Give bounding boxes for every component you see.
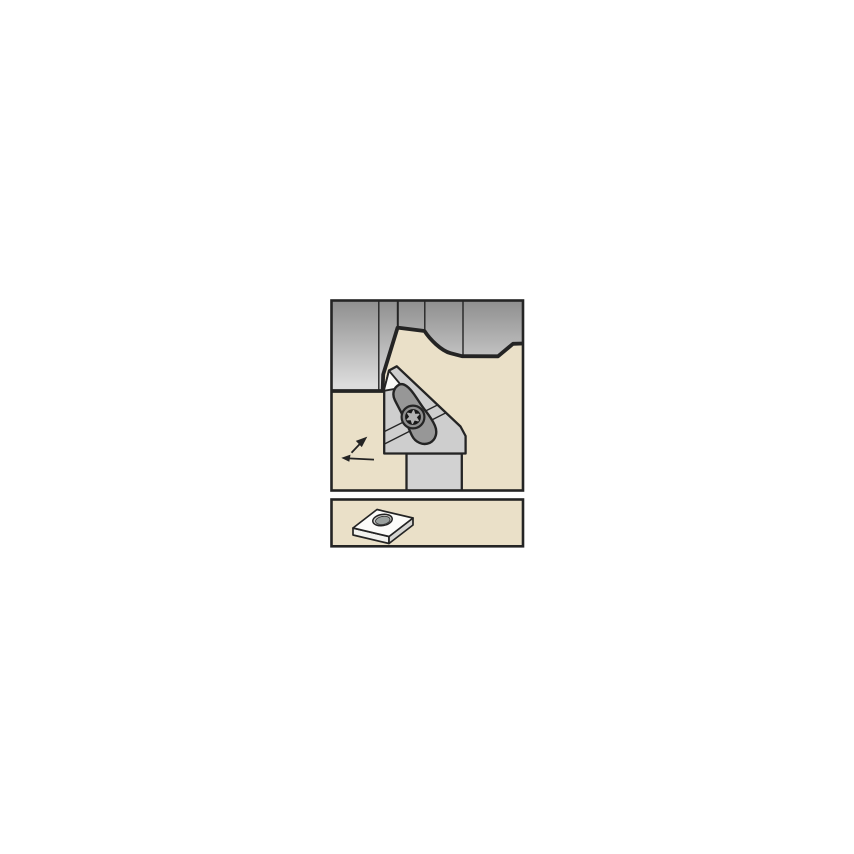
main-panel <box>331 301 524 492</box>
torx-screw-icon <box>402 406 425 429</box>
insert-panel <box>332 500 524 547</box>
catalog-figure <box>0 0 854 854</box>
holder-shank <box>407 454 462 492</box>
figure-canvas <box>0 0 854 854</box>
feed-arrow-left-shaft <box>349 458 374 459</box>
